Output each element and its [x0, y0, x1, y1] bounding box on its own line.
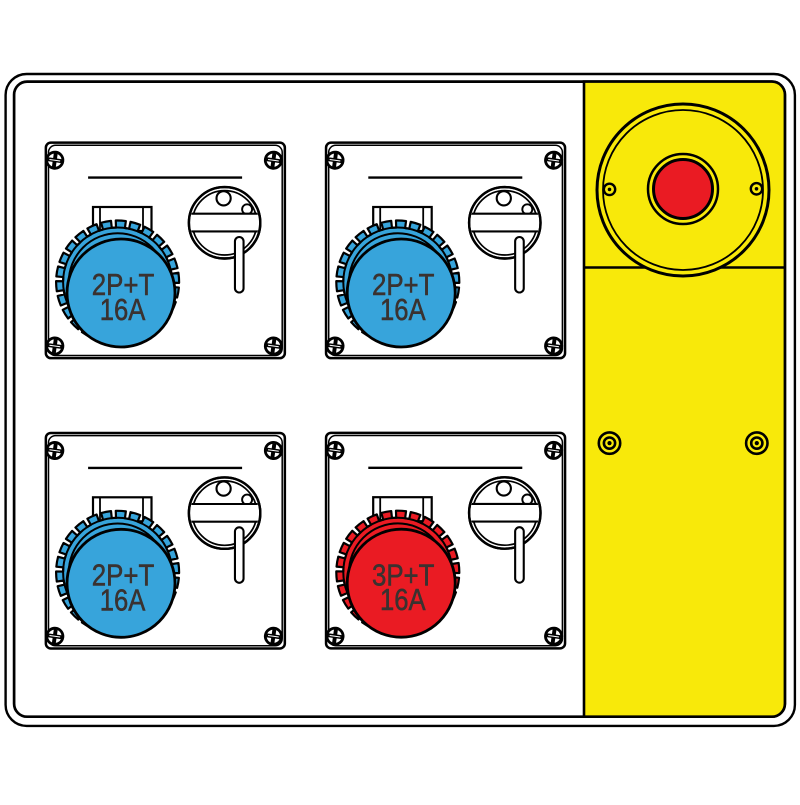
svg-text:16A: 16A — [100, 583, 146, 617]
svg-text:16A: 16A — [380, 293, 426, 327]
svg-text:16A: 16A — [380, 583, 426, 617]
svg-text:16A: 16A — [100, 293, 146, 327]
